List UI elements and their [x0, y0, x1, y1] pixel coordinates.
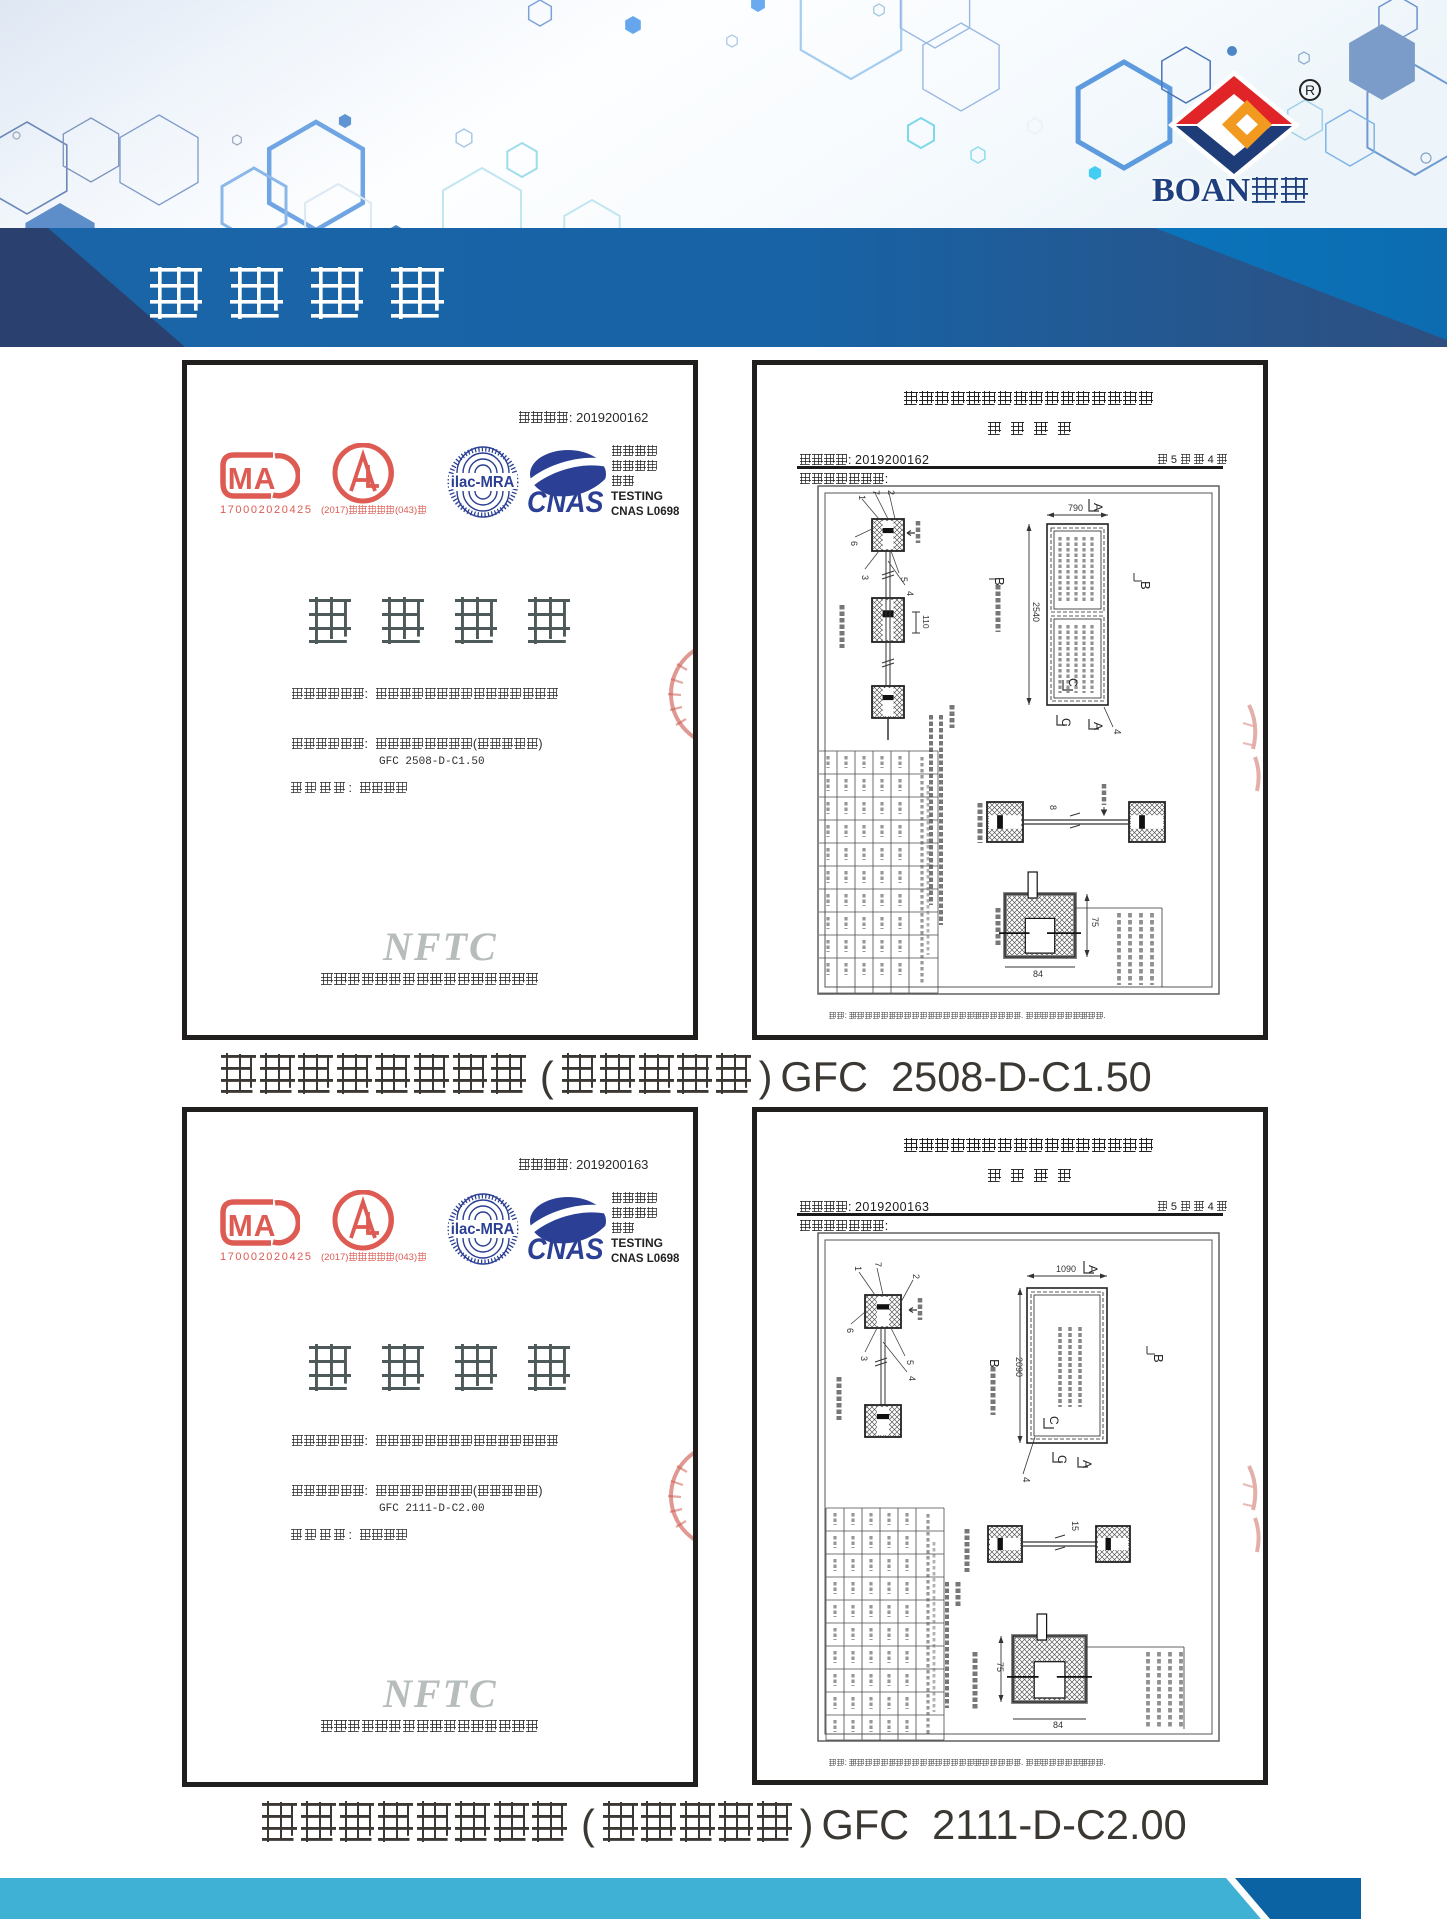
svg-text:7: 7 — [873, 1262, 883, 1267]
svg-text:R: R — [1305, 82, 1315, 98]
svg-text:84: 84 — [1053, 1720, 1063, 1730]
svg-text:A: A — [1091, 503, 1105, 511]
svg-text:MA: MA — [228, 1209, 277, 1244]
svg-text:2: 2 — [886, 490, 896, 495]
svg-text:8: 8 — [1048, 805, 1058, 810]
svg-text:B: B — [1138, 581, 1153, 590]
svg-text:2540: 2540 — [1031, 602, 1041, 622]
svg-text:C: C — [1047, 1416, 1061, 1425]
svg-text:A: A — [1080, 1460, 1094, 1468]
svg-text:MA: MA — [228, 462, 277, 497]
svg-text:2090: 2090 — [1014, 1357, 1024, 1377]
svg-text:1090: 1090 — [1056, 1264, 1076, 1274]
svg-text:110: 110 — [921, 615, 931, 629]
svg-text:C: C — [1055, 1455, 1069, 1464]
svg-text:3: 3 — [859, 1356, 869, 1361]
svg-text:ilac-MRA: ilac-MRA — [451, 1221, 515, 1239]
svg-text:CNAS: CNAS — [527, 1233, 603, 1266]
svg-text:4: 4 — [1111, 729, 1122, 735]
svg-text:B: B — [1151, 1354, 1166, 1363]
svg-text:A: A — [1086, 1265, 1100, 1273]
svg-text:6: 6 — [845, 1328, 855, 1333]
svg-text:6: 6 — [849, 541, 859, 546]
svg-text:C: C — [1066, 678, 1080, 687]
svg-text:790: 790 — [1068, 503, 1083, 513]
svg-text:CNAS: CNAS — [527, 486, 603, 519]
svg-text:4: 4 — [1020, 1477, 1031, 1483]
svg-text:B: B — [987, 1359, 1002, 1368]
svg-text:4: 4 — [905, 591, 915, 596]
svg-text:ilac-MRA: ilac-MRA — [451, 474, 515, 492]
svg-text:1: 1 — [853, 1266, 863, 1271]
svg-text:4: 4 — [907, 1376, 917, 1381]
svg-text:7: 7 — [871, 490, 881, 495]
svg-text:75: 75 — [1090, 917, 1100, 927]
svg-text:75: 75 — [995, 1662, 1005, 1672]
svg-text:3: 3 — [860, 575, 870, 580]
svg-text:A: A — [1091, 722, 1105, 730]
svg-text:5: 5 — [905, 1360, 915, 1365]
svg-text:84: 84 — [1033, 969, 1043, 979]
svg-text:15: 15 — [1070, 1521, 1080, 1531]
svg-text:B: B — [992, 577, 1007, 586]
svg-text:5: 5 — [899, 577, 909, 582]
svg-text:C: C — [1059, 718, 1073, 727]
svg-text:1: 1 — [857, 495, 867, 500]
svg-text:2: 2 — [911, 1274, 921, 1279]
